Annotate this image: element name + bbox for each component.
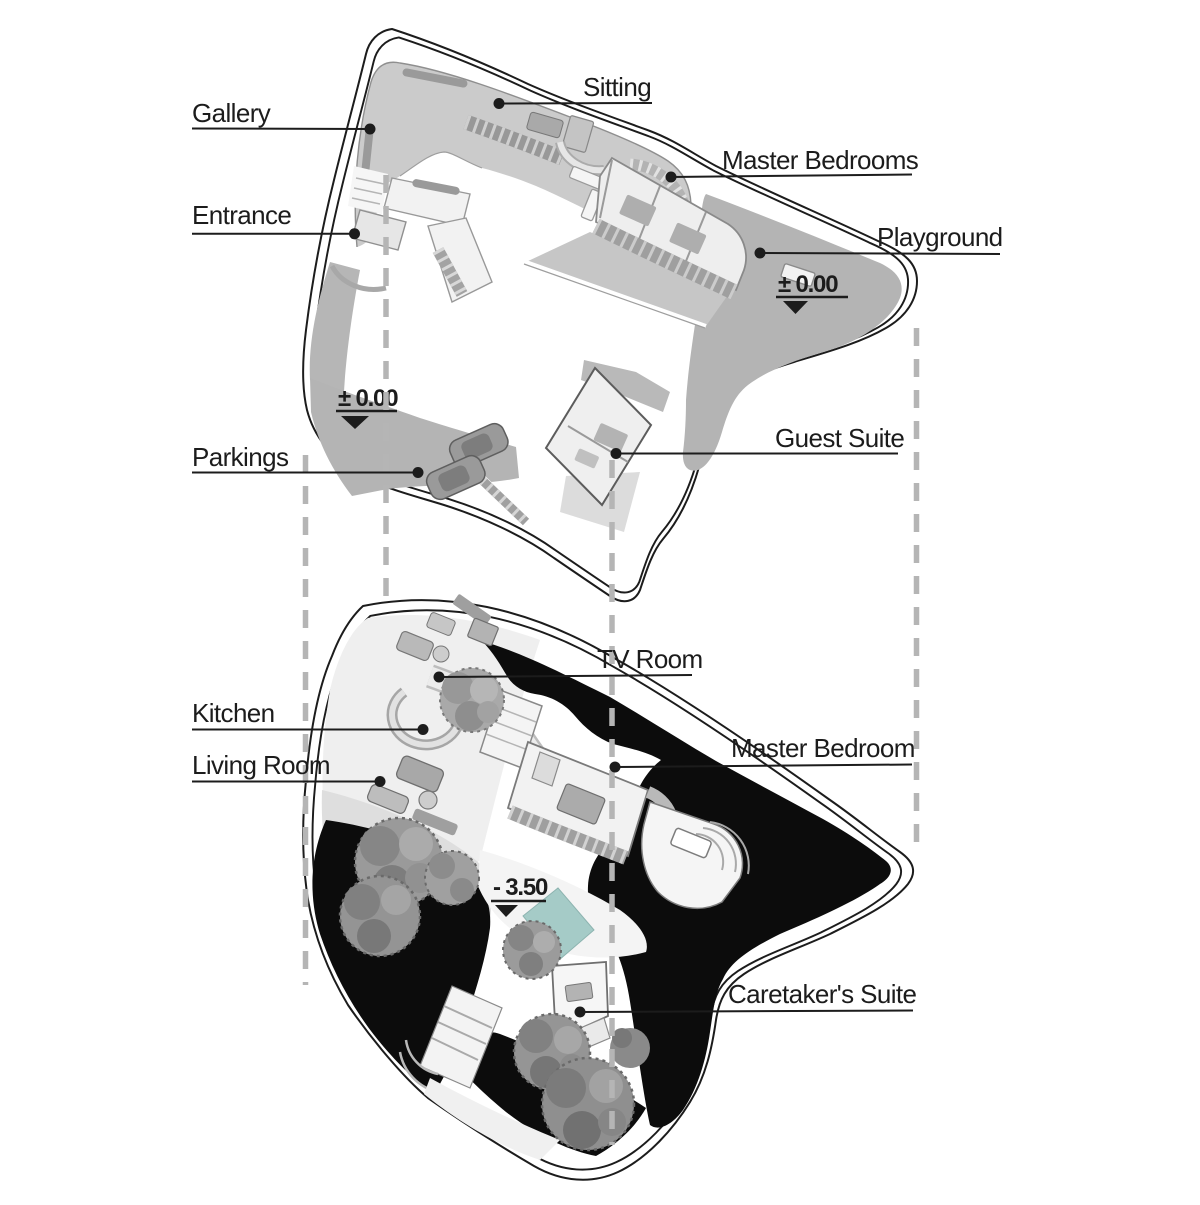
svg-text:TV Room: TV Room	[597, 644, 703, 674]
svg-text:± 0.00: ± 0.00	[338, 385, 398, 412]
svg-text:Entrance: Entrance	[192, 200, 291, 230]
svg-text:Parkings: Parkings	[192, 442, 289, 472]
svg-text:Sitting: Sitting	[583, 72, 651, 102]
svg-text:Master Bedrooms: Master Bedrooms	[722, 145, 919, 175]
svg-text:Master Bedroom: Master Bedroom	[731, 733, 915, 763]
svg-text:Kitchen: Kitchen	[192, 698, 275, 728]
svg-text:Living Room: Living Room	[192, 750, 330, 780]
svg-text:Playground: Playground	[877, 222, 1003, 252]
svg-text:- 3.50: - 3.50	[493, 874, 548, 901]
svg-text:Gallery: Gallery	[192, 98, 271, 128]
svg-text:± 0.00: ± 0.00	[778, 271, 838, 298]
svg-text:Caretaker's Suite: Caretaker's Suite	[728, 979, 917, 1009]
svg-text:Guest Suite: Guest Suite	[775, 423, 904, 453]
